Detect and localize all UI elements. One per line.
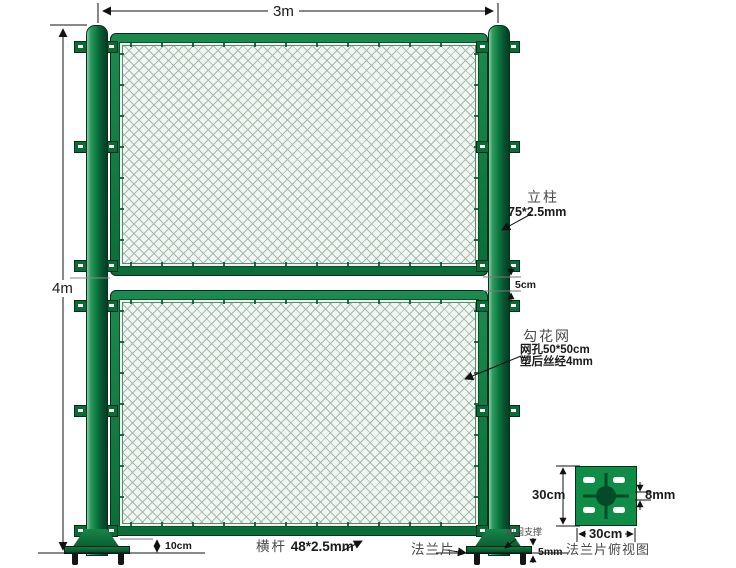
overall-height-dimension: 4m <box>47 280 78 297</box>
flange-detail-height-dimension: 30cm <box>532 488 565 503</box>
tie-wires-left <box>119 53 124 256</box>
rail-label: 横杆 <box>256 539 287 554</box>
panel-gap-dimension: 5cm <box>515 279 536 291</box>
right-post <box>488 25 510 556</box>
tie-wires-right <box>474 53 479 256</box>
top-mesh-panel <box>110 33 488 276</box>
tie-wires-top <box>130 42 468 47</box>
bottom-panel-chainlink-mesh <box>122 302 476 524</box>
overall-width-dimension: 3m <box>268 3 299 20</box>
rail-label-group: 横杆 48*2.5mm <box>256 539 354 555</box>
mesh-wire-spec: 塑后丝经4mm <box>520 356 593 369</box>
rail-spec: 48*2.5mm <box>291 539 354 554</box>
flange-detail-hole-dimension: 8mm <box>645 488 675 503</box>
bottom-mesh-panel <box>110 290 488 536</box>
tie-wires-bottom <box>130 262 468 267</box>
bottom-panel-frame-inner <box>119 299 479 527</box>
tie-wires-top <box>130 299 468 304</box>
anchor-bolt <box>118 554 124 565</box>
flange-detail-plate <box>575 466 637 526</box>
flange-detail-caption: 法兰片俯视图 <box>566 543 650 558</box>
mesh-label: 勾花网 <box>523 328 571 344</box>
left-flange-plate <box>64 546 130 554</box>
tie-wires-bottom <box>130 522 468 527</box>
post-label: 立柱 <box>527 189 559 205</box>
anchor-bolt <box>520 554 526 565</box>
post-spec: 75*2.5mm <box>508 205 566 219</box>
tie-wires-left <box>119 310 124 516</box>
bottom-clearance-dimension: 10cm <box>165 540 192 552</box>
plate-thickness-dimension: 5mm <box>538 546 563 558</box>
top-panel-frame-inner <box>119 42 479 267</box>
anchor-bolt <box>474 554 480 565</box>
flange-label: 法兰片 <box>411 542 455 558</box>
brace-label: 加固支撑 <box>506 527 542 537</box>
flange-detail-width-dimension: 30cm <box>586 527 625 542</box>
anchor-bolt <box>72 554 78 565</box>
left-post <box>86 25 108 556</box>
right-flange-plate <box>466 546 532 554</box>
fence-diagram: 3m 4m 5cm 10cm 5mm 立柱 75*2.5mm 勾花网 网孔50*… <box>0 0 736 568</box>
top-panel-chainlink-mesh <box>122 45 476 264</box>
